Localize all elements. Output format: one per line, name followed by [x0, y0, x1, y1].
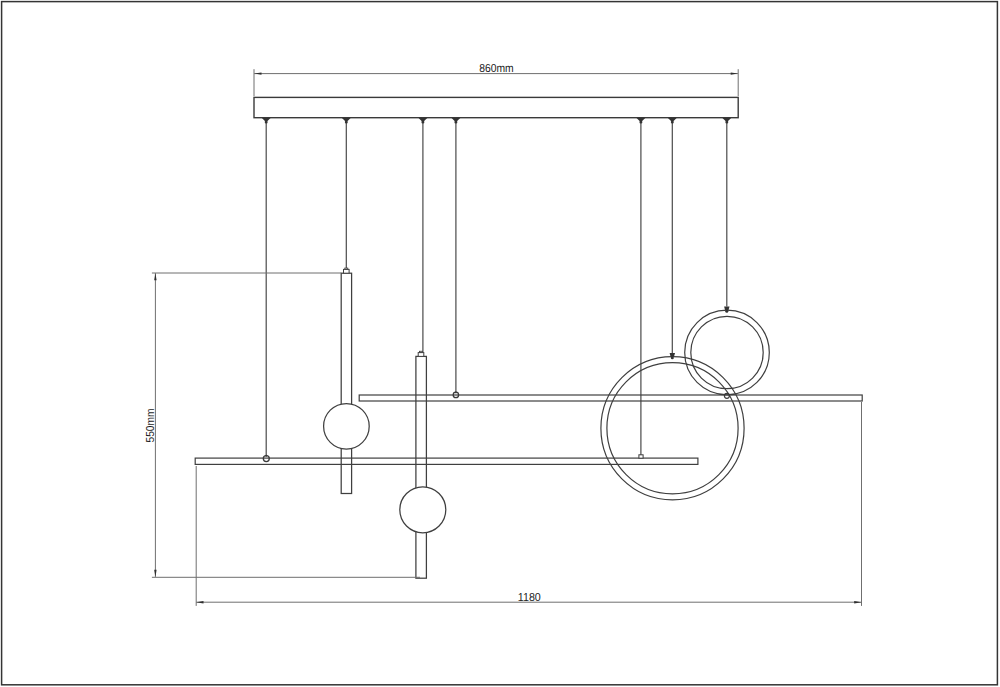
svg-text:860mm: 860mm — [479, 62, 514, 74]
svg-text:1180: 1180 — [518, 591, 541, 603]
svg-text:550mm: 550mm — [144, 409, 156, 443]
